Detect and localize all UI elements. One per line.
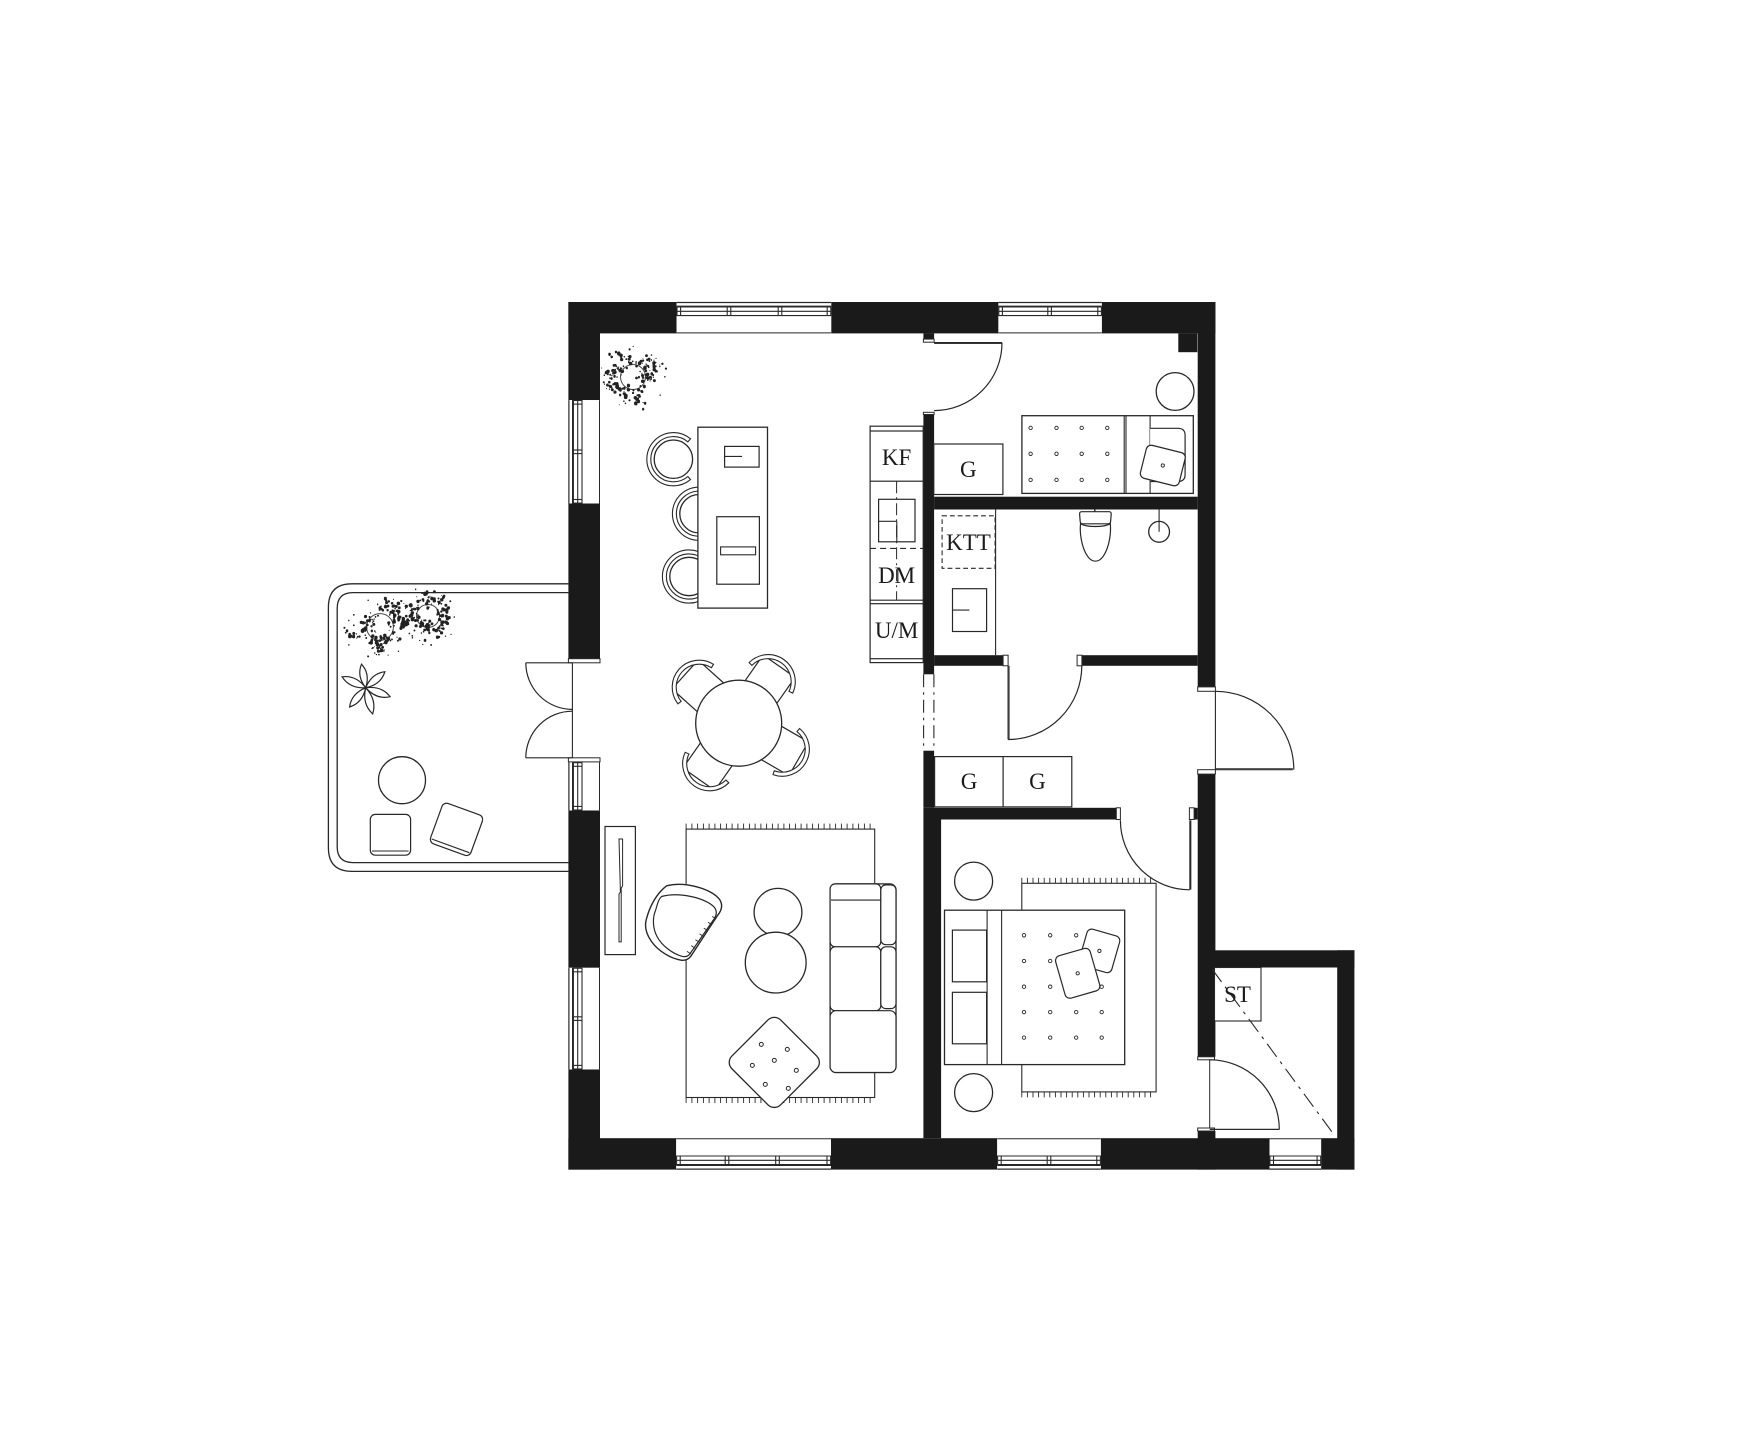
svg-text:G: G [960, 457, 977, 482]
svg-text:DM: DM [878, 563, 915, 588]
svg-text:U/M: U/M [875, 618, 918, 643]
svg-text:ST: ST [1224, 982, 1251, 1007]
svg-text:G: G [1029, 769, 1046, 794]
svg-text:KF: KF [882, 445, 911, 470]
svg-text:KTT: KTT [946, 530, 991, 555]
svg-text:G: G [961, 769, 978, 794]
